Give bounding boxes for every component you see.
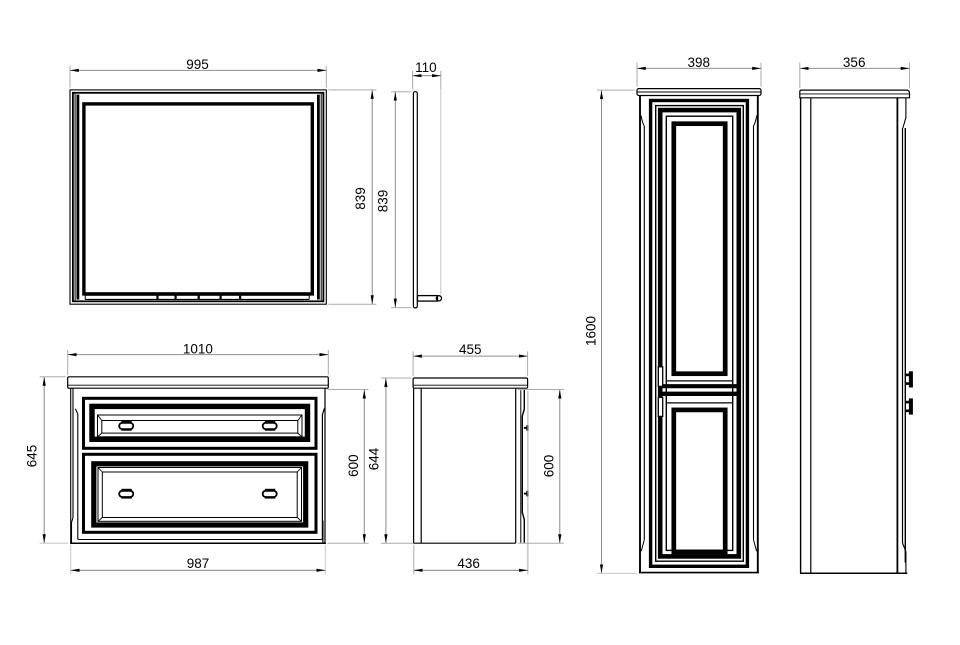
svg-text:455: 455 — [459, 342, 482, 357]
svg-text:436: 436 — [457, 556, 480, 571]
svg-text:645: 645 — [25, 445, 40, 468]
svg-text:600: 600 — [542, 455, 557, 478]
svg-text:1600: 1600 — [583, 316, 598, 346]
svg-text:110: 110 — [415, 60, 437, 75]
svg-text:600: 600 — [346, 454, 361, 477]
svg-text:644: 644 — [366, 447, 381, 470]
svg-text:995: 995 — [186, 57, 209, 72]
svg-text:839: 839 — [353, 187, 368, 210]
svg-text:839: 839 — [375, 190, 390, 213]
svg-text:1010: 1010 — [183, 341, 213, 356]
svg-text:398: 398 — [688, 55, 711, 70]
svg-text:356: 356 — [843, 55, 866, 70]
svg-text:987: 987 — [187, 556, 210, 571]
